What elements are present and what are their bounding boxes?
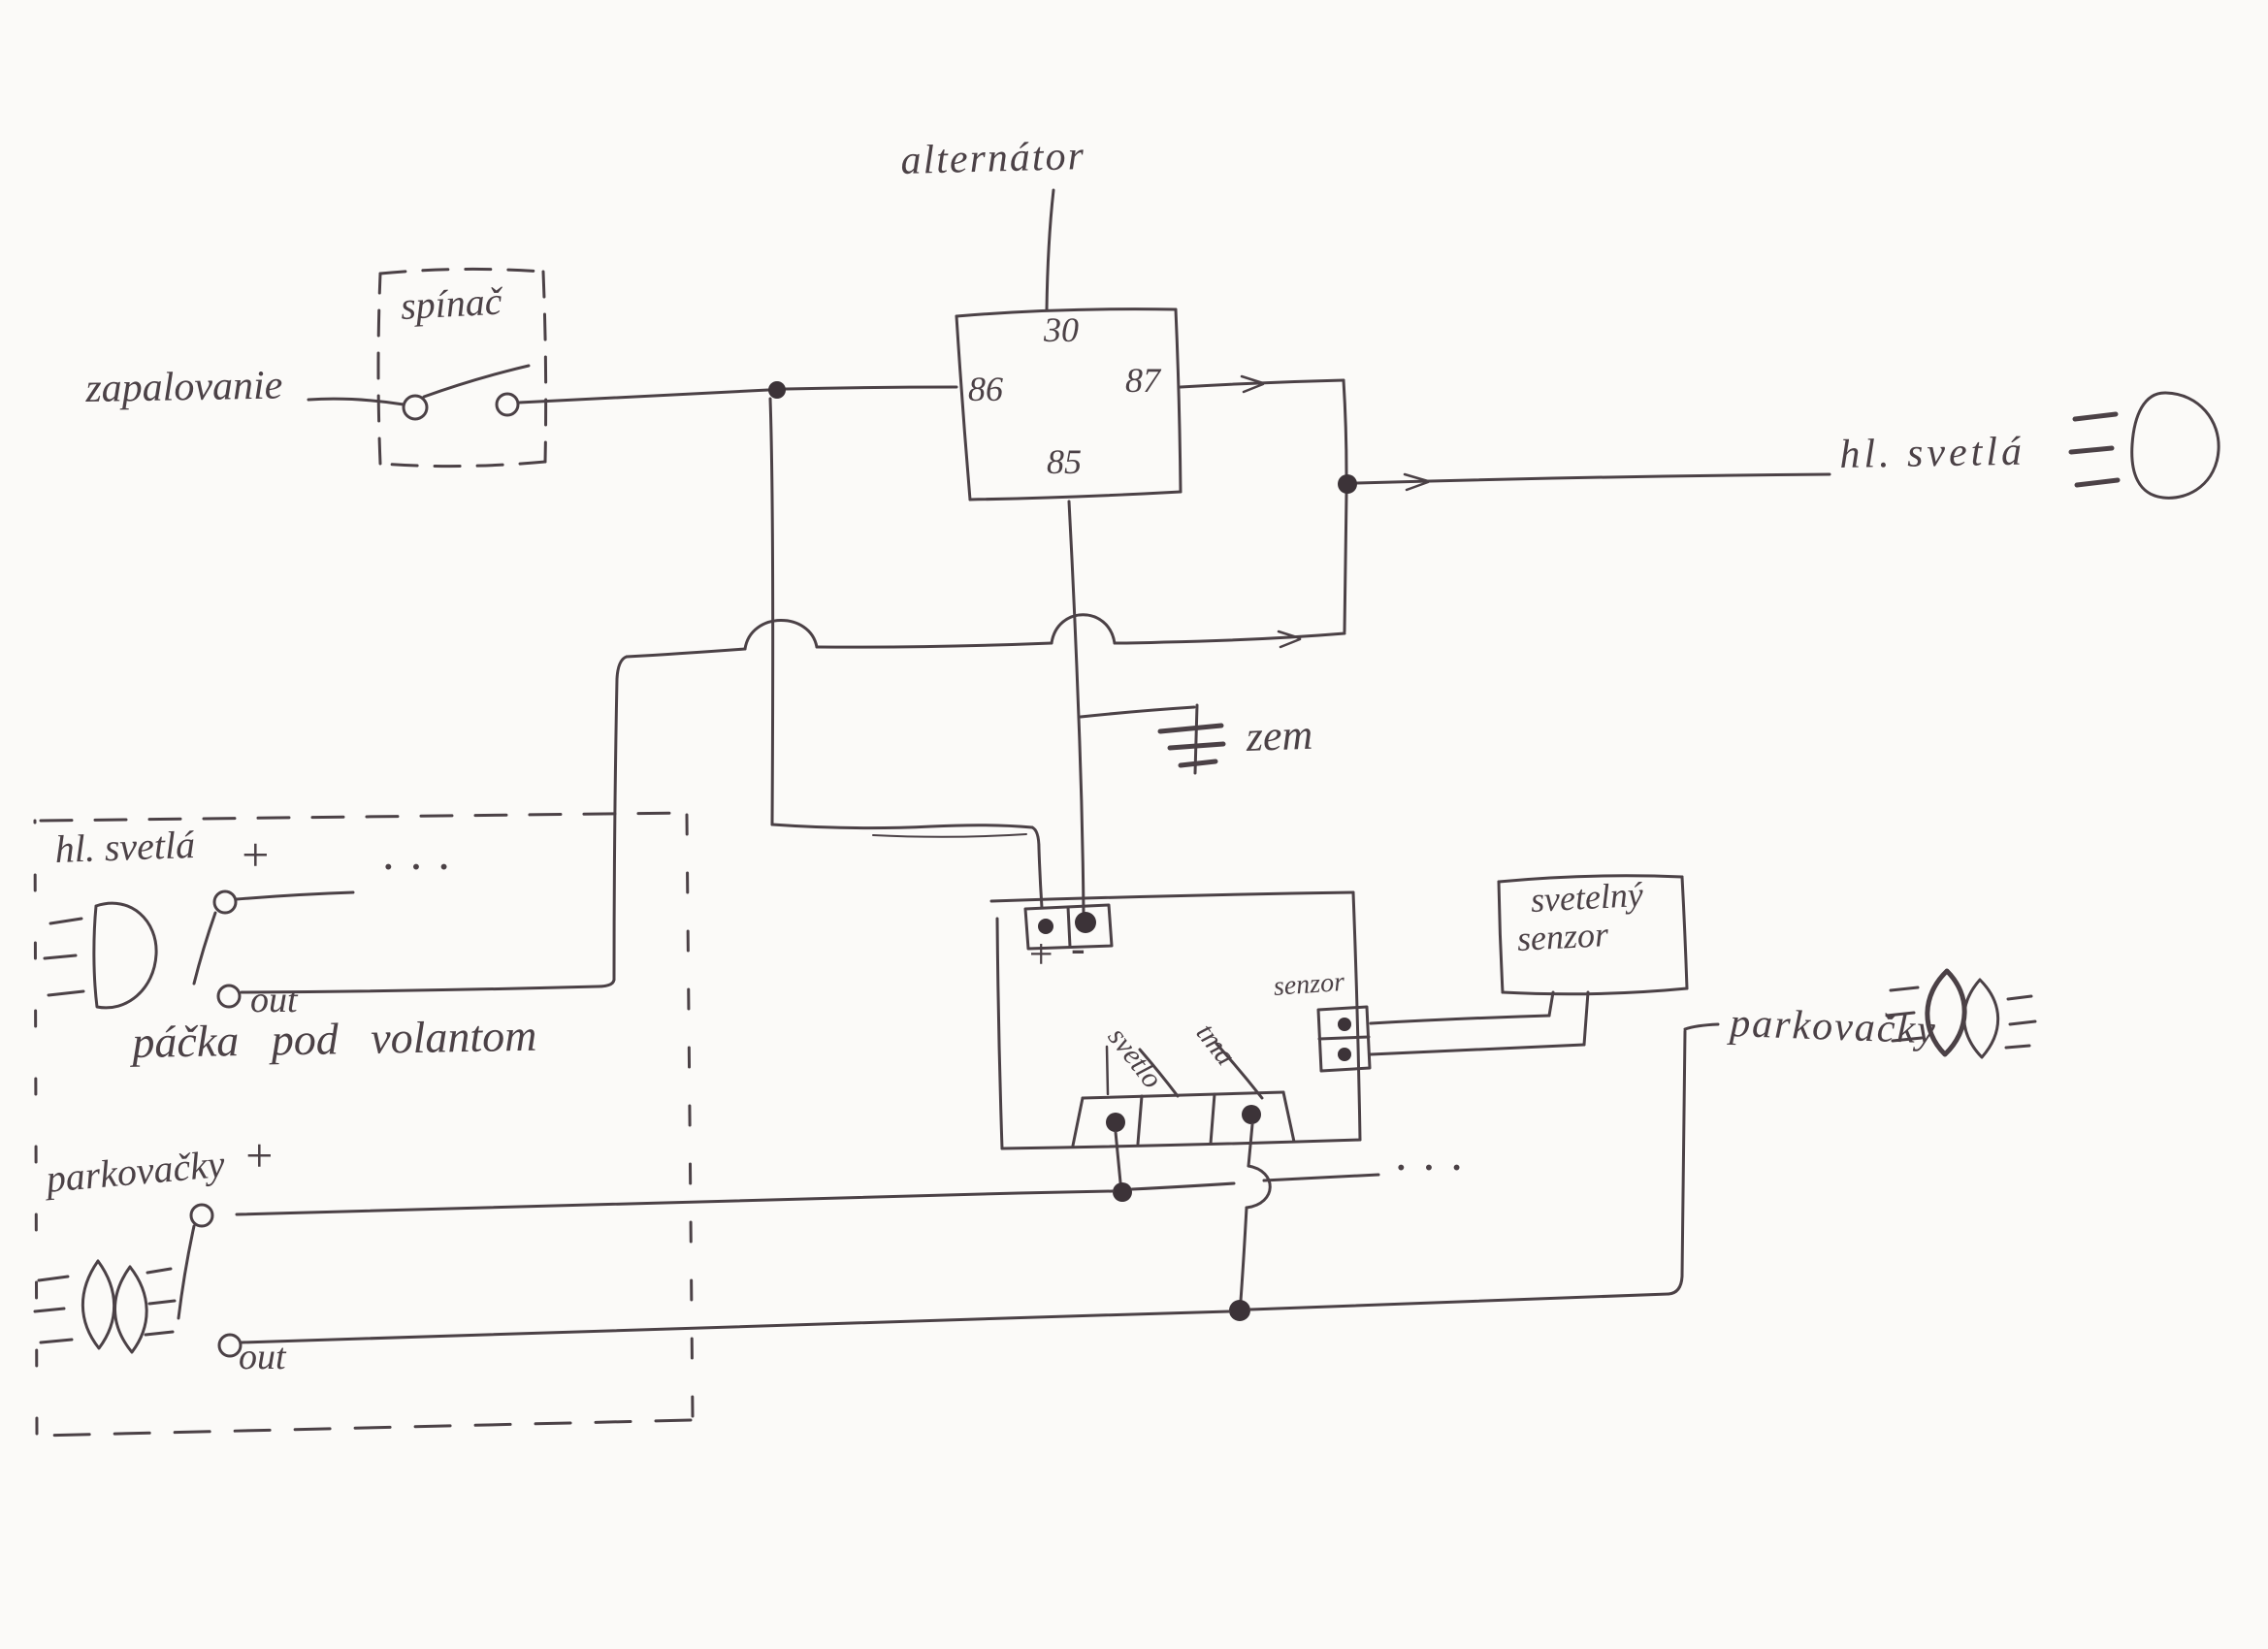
svetlo-output-wire xyxy=(1116,1132,1120,1182)
ignition-label: zapalovanie xyxy=(85,365,283,409)
light-sensor-label-1: svetelný xyxy=(1530,877,1644,918)
stalk-parking-switch xyxy=(178,1205,241,1356)
headlights-right-label: hl. svetlá xyxy=(1839,432,2025,475)
module-plus-label: + xyxy=(1026,933,1055,976)
module-minus-label: - xyxy=(1071,927,1085,970)
wire-hump-over-plus-bus xyxy=(1247,1166,1270,1208)
stalk-plus-top-label: + xyxy=(239,830,272,879)
stalk-lever-bottom xyxy=(178,1226,194,1318)
light-rays xyxy=(146,1269,175,1335)
light-rays xyxy=(45,919,83,995)
wiring-diagram-scan: alternátor zapalovanie spínač 30 86 87 8… xyxy=(0,0,2268,1649)
double-stroke-echo xyxy=(873,834,1026,837)
light-rays xyxy=(35,1277,72,1342)
bus-wire-87-to-stalk-out xyxy=(242,615,1345,992)
sensor-connection-wires xyxy=(1371,992,1588,1054)
light-rays xyxy=(2071,414,2118,485)
junction-dot-svetlo xyxy=(1113,1182,1132,1202)
alternator-wire xyxy=(1047,190,1053,310)
junction-dot-ignition xyxy=(768,381,786,399)
switch-to-relay-wire xyxy=(519,387,956,403)
light-sensor-label-2: senzor xyxy=(1516,917,1609,956)
stalk-out-top-label: out xyxy=(250,982,298,1018)
flow-arrows xyxy=(1242,376,1428,647)
module-sensor-terminals xyxy=(1318,1007,1370,1071)
continuation-dots-right: ··· xyxy=(1393,1143,1476,1191)
ignition-to-module-wire xyxy=(770,399,1042,908)
terminal-tma-dot xyxy=(1242,1105,1261,1124)
parking-icon-left xyxy=(35,1261,175,1352)
tma-output-wire xyxy=(1241,1124,1270,1301)
terminal-svetlo-dot xyxy=(1106,1113,1125,1132)
ground-label: zem xyxy=(1246,714,1313,759)
parking-plus-bus xyxy=(237,1175,1378,1214)
svetlo-leader-stub xyxy=(1107,1047,1108,1094)
stalk-plus-wire-top xyxy=(237,892,353,899)
parking-out-bus xyxy=(242,1024,1718,1342)
relay-terminal-86: 86 xyxy=(968,372,1003,406)
relay85-to-module-wire xyxy=(1069,501,1084,914)
stalk-box-label: páčka pod volantom xyxy=(132,1014,537,1065)
parking-right-label: parkovačky xyxy=(1730,1003,1938,1051)
headlights-left-label: hl. svetlá xyxy=(54,825,196,869)
headlight-icon-right xyxy=(2071,393,2219,498)
diagram-artwork xyxy=(0,0,2268,1649)
headlight-icon-left xyxy=(45,903,156,1008)
wire-hump-over-ignition xyxy=(745,620,817,649)
continuation-dots-top: ··· xyxy=(380,842,464,890)
relay-terminal-85: 85 xyxy=(1047,444,1082,479)
switch-lever xyxy=(424,366,529,397)
relay-terminal-87: 87 xyxy=(1125,363,1160,398)
stalk-lever-top xyxy=(194,913,215,984)
relay-terminal-30: 30 xyxy=(1044,312,1079,347)
ground-symbol xyxy=(1081,705,1223,773)
junction-dot-tma xyxy=(1229,1300,1250,1321)
stalk-plus-bottom-label: + xyxy=(243,1131,275,1180)
alternator-label: alternátor xyxy=(900,136,1085,181)
switch-label: spínač xyxy=(400,282,502,326)
stalk-dashed-box xyxy=(35,813,693,1436)
module-output-terminals xyxy=(1073,1044,1294,1146)
wire-hump-over-85 xyxy=(1052,615,1115,643)
stalk-out-bottom-label: out xyxy=(239,1339,286,1375)
ignition-wire xyxy=(308,399,404,404)
sensor-terminal-label: senzor xyxy=(1273,969,1345,1001)
junction-dot-headlights xyxy=(1338,474,1357,494)
light-rays xyxy=(2006,996,2035,1048)
relay87-wire xyxy=(1181,380,1830,631)
switch-symbol xyxy=(404,366,529,419)
